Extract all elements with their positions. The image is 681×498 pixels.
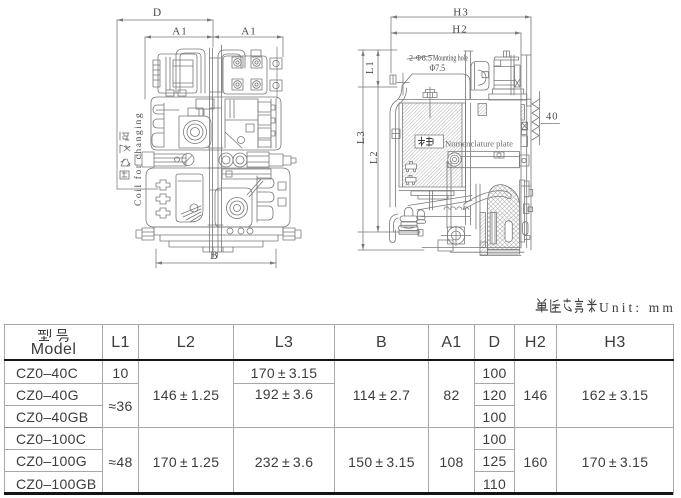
svg-text:Unit: mm: Unit: mm — [599, 300, 676, 315]
svg-text:A1: A1 — [172, 26, 187, 38]
svg-text:Mounting hole: Mounting hole — [433, 53, 468, 63]
svg-text:L1: L1 — [365, 60, 376, 74]
svg-text:H2: H2 — [452, 24, 467, 36]
svg-text:L2: L2 — [369, 150, 380, 164]
svg-text:H3: H3 — [453, 7, 468, 19]
svg-text:D: D — [153, 7, 161, 19]
svg-text:Φ7.5: Φ7.5 — [430, 64, 446, 74]
svg-text:A1: A1 — [241, 26, 256, 38]
svg-text:Nomenclature plate: Nomenclature plate — [445, 140, 513, 149]
svg-text:L3: L3 — [356, 130, 367, 144]
svg-text:40: 40 — [546, 112, 559, 123]
